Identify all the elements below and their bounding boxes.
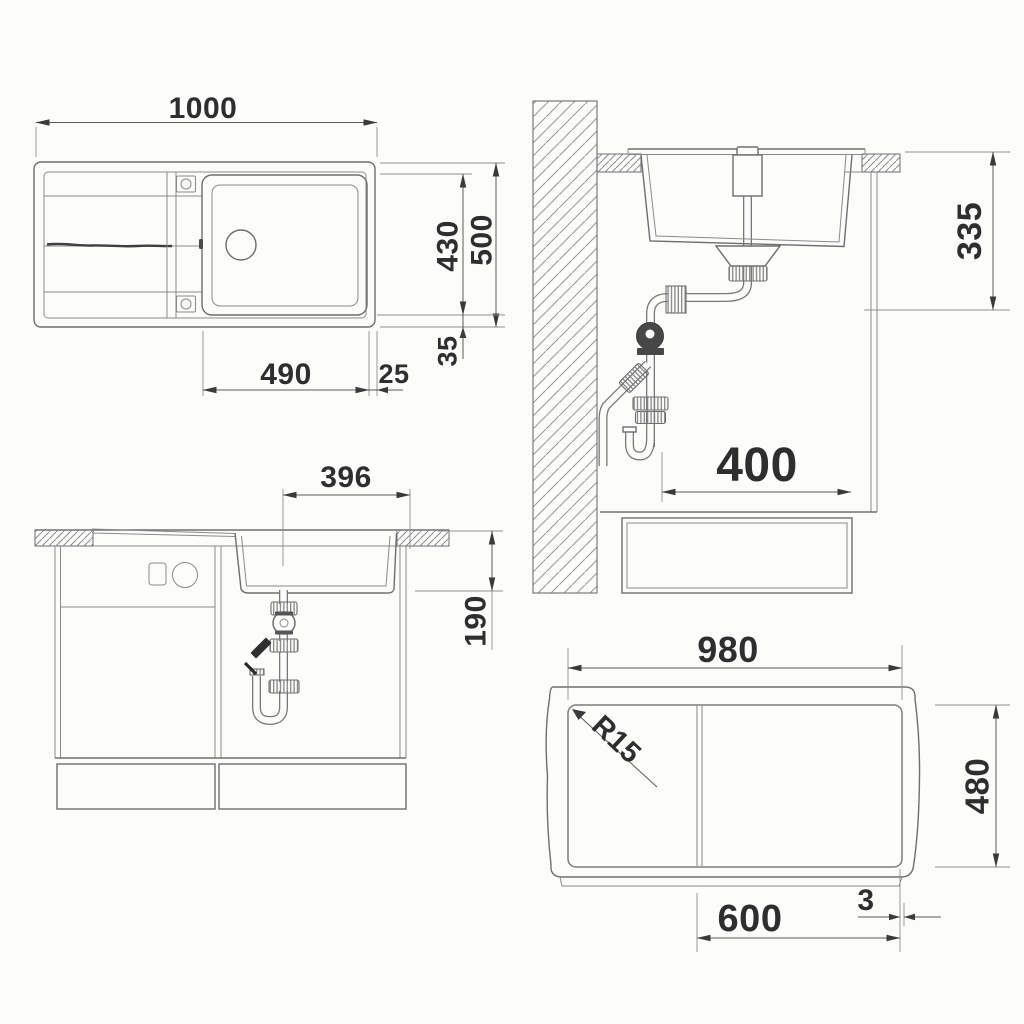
dim-label-front-bowl-width: 396 — [320, 461, 372, 494]
bowl-front-outer — [235, 533, 397, 593]
drawer-front-section — [622, 518, 852, 593]
drain-cap — [737, 147, 758, 155]
counter-front-edge — [560, 877, 902, 886]
wall-section — [533, 101, 597, 593]
plinth-panel-right — [219, 764, 406, 809]
drain-housing — [733, 155, 762, 196]
dim-label-plan-edge-gap: 25 — [378, 359, 409, 389]
tap-hole-mark — [149, 563, 166, 585]
strainer-nut — [729, 266, 767, 281]
dim-label-plan-rim-offset: 35 — [432, 335, 462, 366]
dim-plan-width: 1000 — [36, 92, 377, 157]
dim-plan-bowl-width: 490 — [203, 331, 369, 396]
dim-label-cutout-base-width: 600 — [718, 898, 783, 940]
strainer-body — [716, 246, 780, 266]
overflow-mark — [199, 239, 203, 249]
dim-plan-edge-gap: 25 — [369, 331, 410, 396]
pipe-fitting — [666, 286, 686, 313]
view-cutout: R15 980 480 600 3 — [546, 629, 1010, 952]
dim-label-plan-bowl-depth: 430 — [432, 220, 465, 272]
dim-front-bowl-height: 190 — [415, 531, 503, 650]
trap-cap — [623, 427, 636, 432]
dim-label-front-bowl-height: 190 — [460, 595, 493, 647]
plinth-panel-left — [57, 764, 215, 809]
dim-plan-rim-offset: 35 — [432, 315, 466, 367]
dim-cutout-edge-gap: 3 — [857, 884, 941, 926]
dim-front-bowl-width: 396 — [283, 461, 410, 566]
counter-end-right — [397, 530, 449, 546]
drainboard — [44, 172, 202, 318]
cabinet-front — [55, 546, 406, 809]
dim-label-cutout-edge-gap: 3 — [857, 884, 874, 917]
technical-drawing-page: 1000 500 430 35 490 25 — [0, 0, 1024, 1024]
countertop-right — [862, 154, 900, 172]
dishwasher-spout — [250, 637, 271, 658]
dim-label-cutout-radius: R15 — [585, 709, 647, 770]
dim-section-clearance: 400 — [662, 439, 851, 502]
drain-hole — [226, 230, 256, 260]
dim-section-under-counter: 335 — [864, 152, 1010, 310]
bowl-front-inner — [242, 536, 391, 586]
dim-label-cutout-height: 480 — [959, 758, 996, 815]
counter-end-left — [35, 530, 93, 546]
accessory-hole-top — [177, 176, 196, 192]
dim-label-section-depth: 335 — [951, 202, 989, 260]
view-plan: 1000 500 430 35 490 25 — [34, 92, 505, 396]
dim-label-section-clearance: 400 — [716, 439, 798, 492]
dim-cutout-height: 480 — [935, 705, 1010, 867]
view-front: 396 190 — [35, 461, 503, 809]
view-section: 335 400 — [533, 101, 1010, 593]
sink-technical-drawing: 1000 500 430 35 490 25 — [0, 0, 1024, 1024]
countertop-left — [597, 154, 641, 172]
cabinet-section — [600, 172, 877, 593]
dim-cutout-radius: R15 — [572, 709, 657, 787]
dim-label-plan-width: 1000 — [169, 92, 238, 125]
dim-label-cutout-width: 980 — [697, 629, 759, 670]
tap-hole-circle — [173, 563, 198, 588]
dim-label-plan-bowl-width: 490 — [260, 358, 312, 391]
accessory-hole-bottom — [177, 296, 196, 312]
bowl-plan — [199, 175, 367, 315]
drain-plumbing-front — [245, 590, 299, 721]
dim-label-plan-depth: 500 — [466, 214, 499, 266]
dim-cutout-width: 980 — [568, 629, 902, 700]
